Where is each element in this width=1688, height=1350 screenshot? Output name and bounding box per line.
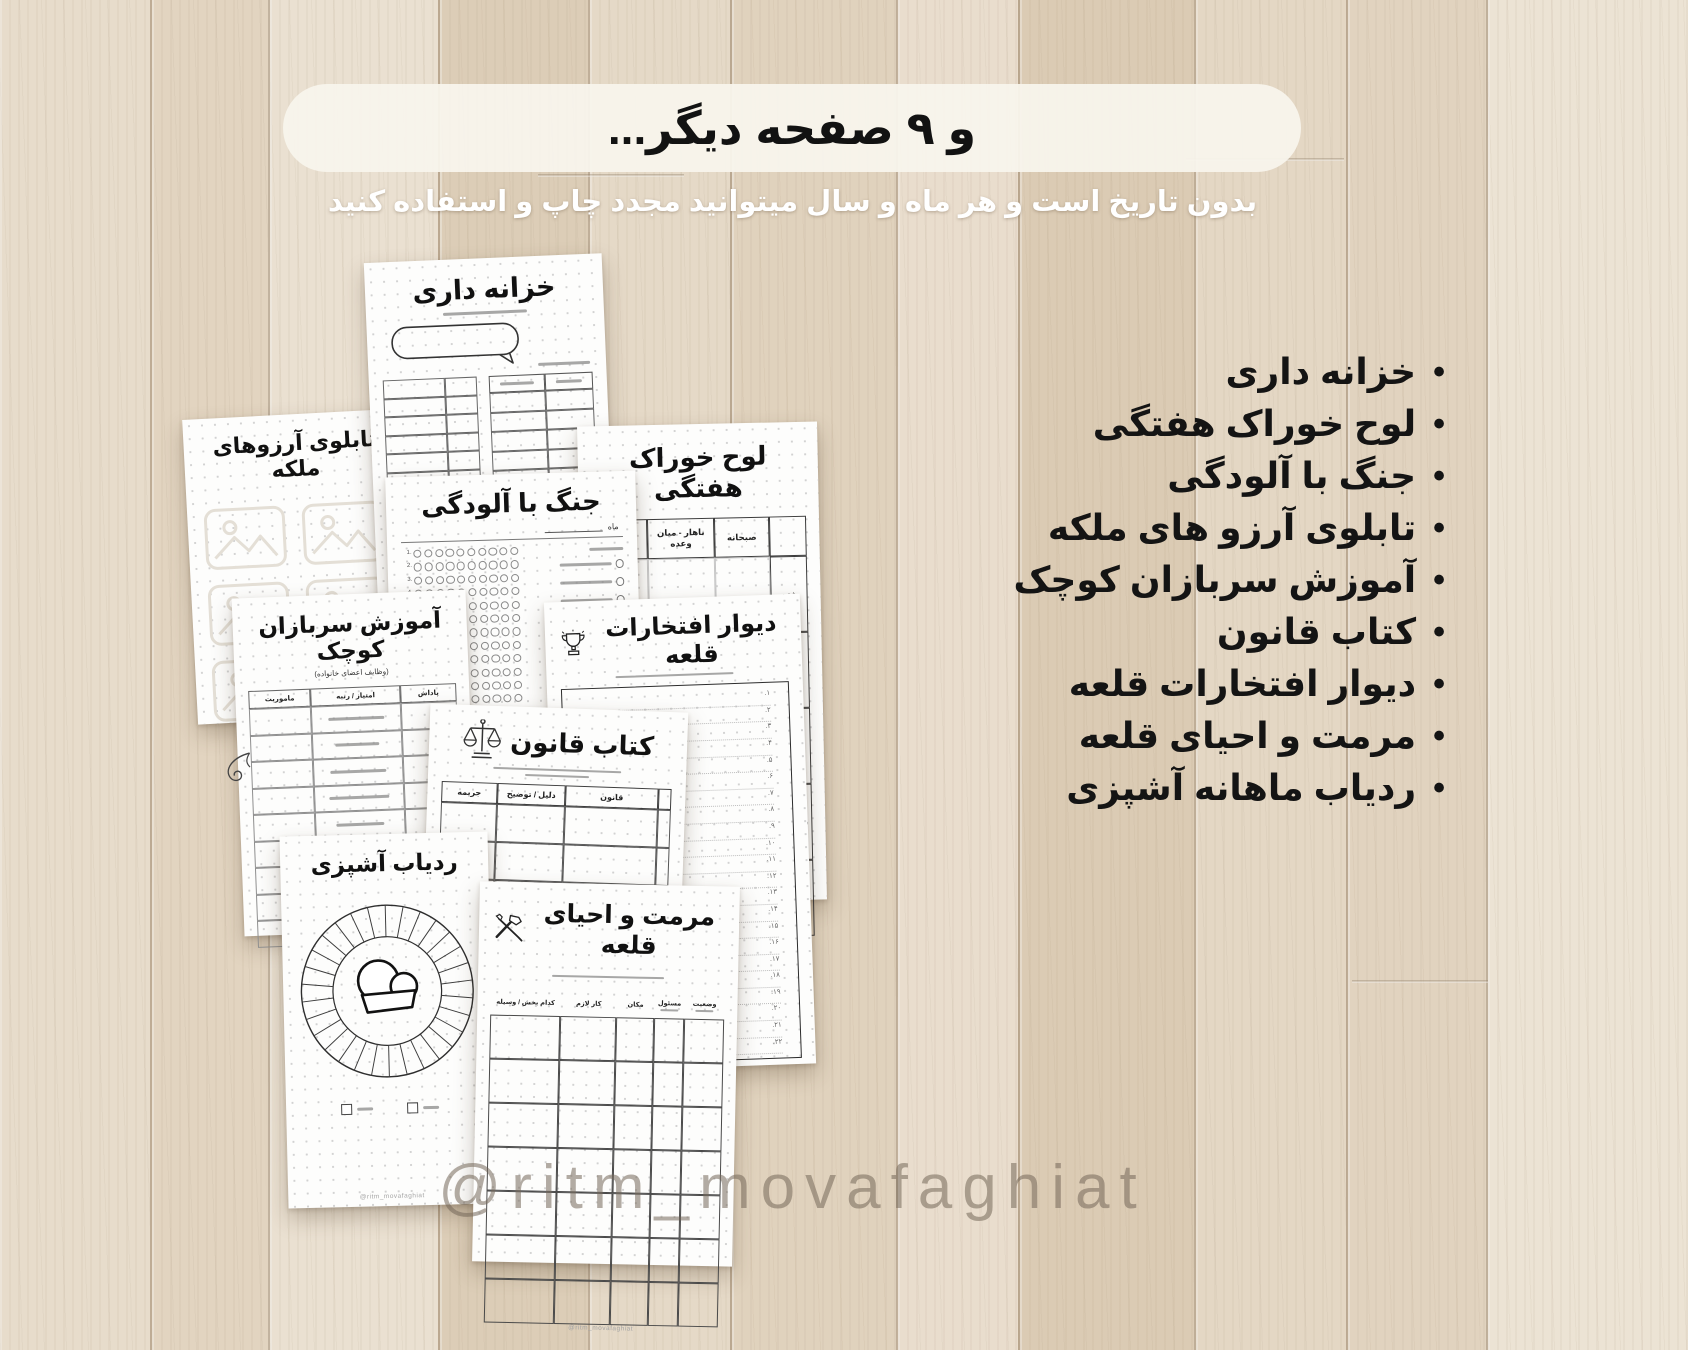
tracker-dot-icon: [436, 576, 444, 584]
tracker-dot-icon: [489, 561, 497, 569]
legend-check: [407, 1102, 439, 1114]
tracker-dot-icon: [468, 588, 476, 596]
tracker-dot-icon: [489, 574, 497, 582]
tracker-dot-icon: [504, 694, 512, 702]
tracker-dot-icon: [501, 601, 509, 609]
tracker-dot-icon: [499, 547, 507, 555]
tracker-dot-icon: [512, 614, 520, 622]
wood-plank: [0, 0, 150, 1350]
restoration-subtitle-scribble: [552, 975, 664, 980]
tracker-dot-icon: [490, 588, 498, 596]
tracker-dot-icon: [468, 575, 476, 583]
tracker-dot-icon: [467, 561, 475, 569]
feature-item: •جنگ با آلودگی: [1014, 450, 1445, 502]
tracker-dot-icon: [491, 614, 499, 622]
tracker-dot-icon: [480, 615, 488, 623]
bullet-icon: •: [1433, 563, 1445, 597]
swirl-ornament-icon: [221, 747, 257, 788]
feature-item: •خزانه داری: [1014, 346, 1445, 398]
monthly-ring-chart: [293, 891, 482, 1091]
tracker-dot-icon: [501, 614, 509, 622]
tracker-dot-icon: [482, 695, 490, 703]
checklist-item: [527, 559, 624, 570]
column-header: پاداش: [400, 683, 457, 703]
restoration-title: مرمت و احیای قلعه: [532, 898, 727, 962]
subtitle-text: بدون تاریخ است و هر ماه و سال میتوانید م…: [285, 184, 1300, 219]
tracker-dot-icon: [467, 548, 475, 556]
tracker-dot-icon: [502, 627, 510, 635]
rank-text-scribble: [330, 769, 386, 774]
tracker-dot-icon: [480, 641, 488, 649]
cooking-tracker-title: ردیاب آشپزی: [292, 848, 477, 879]
column-header: ناهار - میان وعده: [647, 518, 714, 559]
promo-post-image: و ۹ صفحه دیگر... بدون تاریخ است و هر ماه…: [0, 0, 1688, 1350]
tracker-dot-icon: [481, 668, 489, 676]
tracker-dot-icon: [446, 575, 454, 583]
tracker-dot-icon: [503, 681, 511, 689]
tracker-dot-icon: [481, 655, 489, 663]
column-header: کدام بخش / وسیله: [490, 989, 561, 1016]
bullet-icon: •: [1433, 407, 1445, 441]
tracker-dot-icon: [492, 681, 500, 689]
column-header: مسئول: [654, 992, 685, 1019]
tracker-dot-icon: [479, 601, 487, 609]
tracker-dot-icon: [446, 549, 454, 557]
law-book-title: کتاب قانون: [510, 726, 655, 762]
feature-item: •ردیاب ماهانه آشپزی: [1014, 762, 1445, 814]
tracker-dot-icon: [512, 600, 520, 608]
tools-icon: [492, 909, 526, 948]
feature-item: •تابلوی آرزو های ملکه: [1014, 502, 1445, 554]
tracker-dot-icon: [493, 695, 501, 703]
tracker-dot-icon: [482, 682, 490, 690]
bullet-icon: •: [1433, 667, 1445, 701]
bullet-icon: •: [1433, 511, 1445, 545]
feature-list: •خزانه داری •لوح خوراک هفتگی •جنگ با آلو…: [1014, 346, 1445, 814]
tracker-dot-icon: [503, 668, 511, 676]
honors-subtitle-scribble: [615, 672, 733, 678]
column-header: مکان: [617, 991, 655, 1018]
tracker-dot-icon: [492, 668, 500, 676]
tracker-dot-icon: [480, 628, 488, 636]
month-field: ماه: [405, 522, 619, 537]
tracker-dot-icon: [470, 669, 478, 677]
tracker-dot-icon: [469, 602, 477, 610]
treasury-subtitle-scribble: [443, 309, 527, 316]
legend-check: [341, 1103, 373, 1115]
tracker-dot-icon: [435, 562, 443, 570]
checkbox-icon: [341, 1104, 352, 1115]
pollution-war-title: جنگ با آلودگی: [400, 485, 623, 522]
rank-text-scribble: [328, 716, 384, 721]
tracker-dot-icon: [489, 547, 497, 555]
tracker-dot-icon: [492, 655, 500, 663]
tracker-dot-icon: [512, 627, 520, 635]
column-header: جریمه: [441, 781, 498, 804]
tracker-dot-icon: [479, 575, 487, 583]
column-header: کار لازم: [560, 990, 617, 1017]
tracker-dot-icon: [435, 549, 443, 557]
tracker-dot-icon: [500, 574, 508, 582]
tracker-dot-icon: [511, 560, 519, 568]
bullet-icon: •: [1433, 355, 1445, 389]
tracker-dot-icon: [414, 563, 422, 571]
tracker-dot-icon: [469, 628, 477, 636]
tracker-dot-icon: [478, 561, 486, 569]
law-subtitle-scribble: [493, 767, 621, 774]
circle-checkbox-icon: [616, 577, 625, 586]
tracker-dot-icon: [479, 588, 487, 596]
tracker-dot-icon: [511, 574, 519, 582]
treasury-note-scribble: [538, 361, 590, 366]
tracker-dot-icon: [513, 641, 521, 649]
column-header: دلیل / توضیح: [497, 783, 566, 806]
trophy-icon: [559, 626, 588, 663]
wishboard-title: تابلوی آرزوهای ملکه: [195, 425, 395, 487]
tracker-dot-icon: [490, 601, 498, 609]
tracker-dot-icon: [470, 655, 478, 663]
bullet-icon: •: [1433, 459, 1445, 493]
wood-plank: [1486, 0, 1688, 1350]
treasury-title: خزانه داری: [378, 270, 589, 310]
image-placeholder-icon: [203, 505, 288, 571]
watermark-handle: @ritm_movafaghiat: [255, 1152, 1330, 1223]
tracker-dot-icon: [446, 562, 454, 570]
bullet-icon: •: [1433, 615, 1445, 649]
tracker-dot-icon: [514, 667, 522, 675]
tracker-dot-icon: [513, 654, 521, 662]
bullet-icon: •: [1433, 771, 1445, 805]
wood-joint: [538, 174, 684, 177]
tracker-dot-icon: [502, 654, 510, 662]
tracker-dot-icon: [469, 615, 477, 623]
tracker-dot-icon: [456, 548, 464, 556]
tracker-dot-icon: [514, 694, 522, 702]
tracker-dot-icon: [457, 575, 465, 583]
feature-item: •آموزش سربازان کوچک: [1014, 554, 1445, 606]
page-title: و ۹ صفحه دیگر...: [608, 101, 976, 155]
training-title: آموزش سربازان کوچک: [245, 606, 455, 668]
title-banner: و ۹ صفحه دیگر...: [283, 84, 1301, 172]
feature-item: •مرمت و احیای قلعه: [1014, 710, 1445, 762]
feature-item: •کتاب قانون: [1014, 606, 1445, 658]
tracker-dot-icon: [425, 576, 433, 584]
tracker-dot-icon: [491, 641, 499, 649]
scales-icon: [462, 719, 503, 762]
tracker-dot-icon: [514, 681, 522, 689]
tracker-dot-icon: [471, 695, 479, 703]
feature-item: •لوح خوراک هفتگی: [1014, 398, 1445, 450]
tracker-dot-icon: [471, 682, 479, 690]
checklist-item: [527, 577, 624, 588]
tracker-dot-icon: [510, 547, 518, 555]
rank-text-scribble: [335, 743, 379, 747]
image-placeholder-icon: [301, 500, 386, 566]
rank-text-scribble: [336, 822, 384, 826]
circle-checkbox-icon: [615, 559, 624, 568]
tracker-dot-icon: [414, 576, 422, 584]
tracker-dot-icon: [478, 548, 486, 556]
honors-wall-title: دیوار افتخارات قلعه: [595, 608, 789, 673]
tracker-dot-icon: [500, 561, 508, 569]
checkbox-icon: [407, 1102, 418, 1113]
tracker-dot-icon: [470, 642, 478, 650]
tracker-dot-icon: [511, 587, 519, 595]
rank-text-scribble: [329, 795, 389, 800]
bullet-icon: •: [1433, 719, 1445, 753]
speech-bubble: [388, 318, 532, 372]
tracker-dot-icon: [413, 550, 421, 558]
tracker-dot-icon: [491, 628, 499, 636]
tracker-dot-icon: [424, 549, 432, 557]
column-header: وضعیت: [684, 993, 724, 1020]
tracker-dot-icon: [457, 562, 465, 570]
tracker-dot-icon: [501, 587, 509, 595]
wood-joint: [1352, 980, 1488, 983]
chef-hat-icon: [358, 960, 418, 1013]
law-subtitle-scribble: [525, 774, 589, 778]
tracker-dot-icon: [424, 563, 432, 571]
column-header: صبحانه: [714, 517, 770, 558]
feature-item: •دیوار افتخارات قلعه: [1014, 658, 1445, 710]
tracker-dot-icon: [502, 641, 510, 649]
